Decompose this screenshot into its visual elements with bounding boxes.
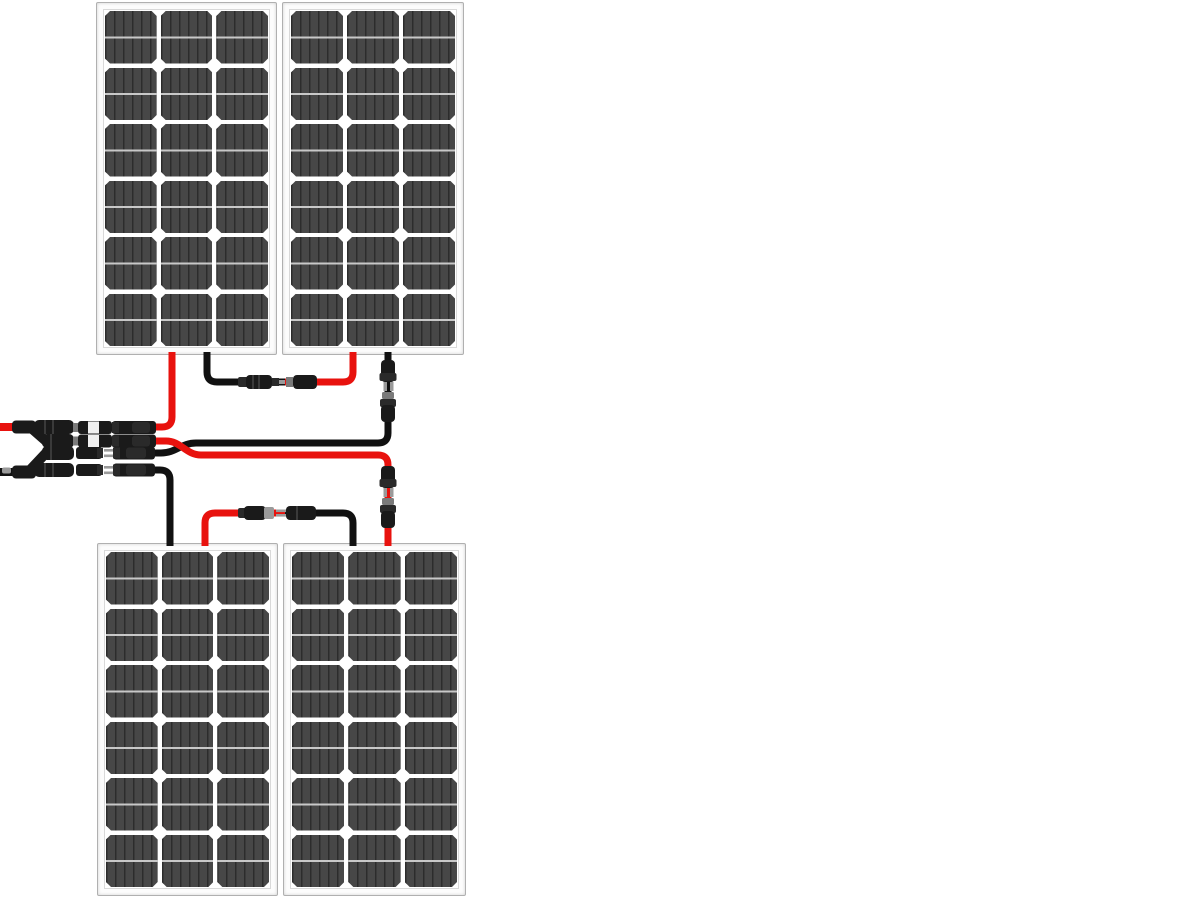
wire-bottom-left-negative	[148, 470, 170, 546]
mc4-connector-pair-top	[238, 375, 317, 389]
solar-array-wiring-diagram	[0, 0, 1200, 898]
wire-top-left-positive	[148, 352, 172, 427]
y-branch-connector-positive	[12, 420, 156, 448]
wiring-layer	[0, 0, 1200, 898]
y-branch-connector-negative	[2, 446, 155, 479]
